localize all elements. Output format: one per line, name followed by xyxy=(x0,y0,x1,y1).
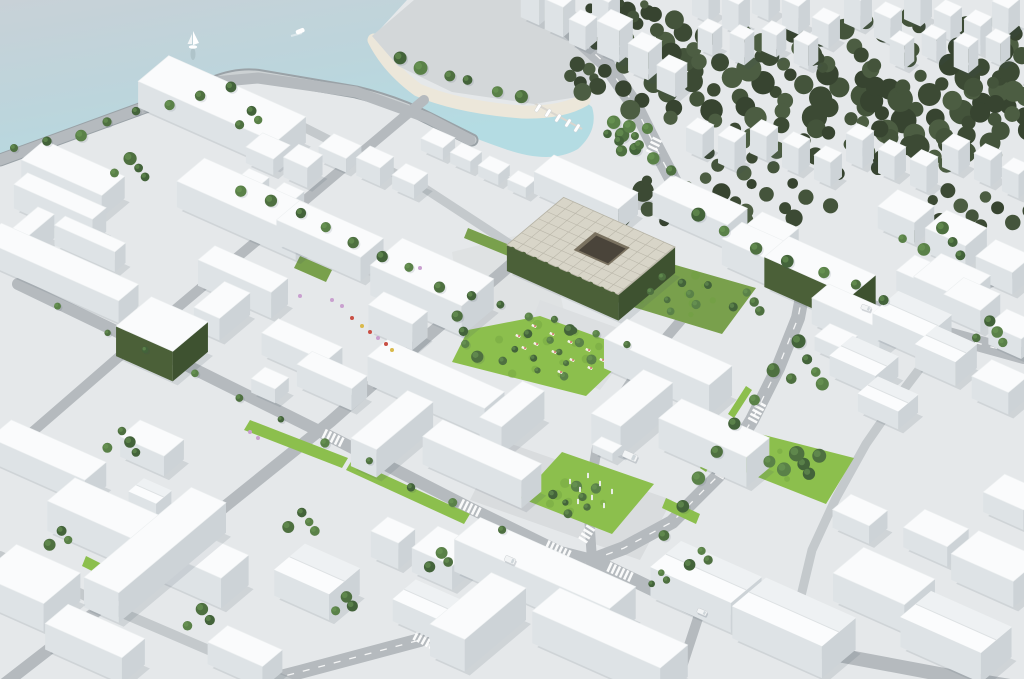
parasol-dot xyxy=(588,349,590,351)
forest-canopy xyxy=(589,78,606,95)
tree-highlight xyxy=(236,395,240,399)
lawn-texture xyxy=(710,297,716,303)
tree-highlight xyxy=(616,129,623,136)
tree-highlight xyxy=(664,577,668,581)
tree-highlight xyxy=(395,53,401,59)
tree-highlight xyxy=(648,288,652,292)
sailboat-reflection xyxy=(191,48,196,60)
tree-highlight xyxy=(659,570,662,573)
tree-highlight xyxy=(499,357,503,361)
forest-canopy xyxy=(598,64,612,78)
forest-canopy xyxy=(691,54,707,70)
tree-highlight xyxy=(405,264,410,269)
forest-canopy xyxy=(707,83,720,96)
ivy-fringe xyxy=(532,257,537,262)
tree-highlight xyxy=(472,352,478,358)
tree-highlight xyxy=(512,347,515,350)
forest-canopy xyxy=(573,83,591,101)
tree-highlight xyxy=(705,282,709,286)
tree-highlight xyxy=(236,121,241,126)
tree-highlight xyxy=(572,482,577,487)
tree-highlight xyxy=(790,448,798,456)
tree-highlight xyxy=(143,347,146,350)
lawn-texture xyxy=(508,370,516,378)
parasol-dot xyxy=(602,359,604,361)
tree-highlight xyxy=(499,527,503,531)
tree-highlight xyxy=(342,592,348,598)
tree-highlight xyxy=(819,268,825,274)
forest-canopy xyxy=(943,91,962,110)
ivy-fringe xyxy=(599,287,604,292)
lawn-texture xyxy=(600,500,606,506)
tree-highlight xyxy=(750,396,755,401)
forest-canopy xyxy=(747,179,757,189)
ivy-fringe xyxy=(521,252,526,257)
market-accent xyxy=(368,330,372,334)
tree-highlight xyxy=(197,604,203,610)
tree-highlight xyxy=(756,307,761,312)
tree-highlight xyxy=(366,458,370,462)
tree-highlight xyxy=(617,146,623,152)
forest-canopy xyxy=(980,191,991,202)
tree-highlight xyxy=(985,316,991,322)
parasol-dot xyxy=(552,333,554,335)
market-accent xyxy=(376,336,380,340)
forest-canopy xyxy=(650,23,664,37)
tree-highlight xyxy=(608,117,615,124)
tree-highlight xyxy=(125,153,132,160)
tree-highlight xyxy=(659,274,663,278)
tree-highlight xyxy=(973,334,977,338)
tree-highlight xyxy=(956,251,961,256)
tree-highlight xyxy=(565,325,571,331)
market-accent xyxy=(418,266,422,270)
tree-highlight xyxy=(111,169,115,173)
tree-highlight xyxy=(635,141,640,146)
tree-highlight xyxy=(43,137,48,142)
tree-highlight xyxy=(192,370,196,374)
market-accent xyxy=(330,298,334,302)
tree-highlight xyxy=(531,355,535,359)
tree-highlight xyxy=(437,548,443,554)
tree-highlight xyxy=(453,312,459,318)
tree-highlight xyxy=(378,252,384,258)
parasol-dot xyxy=(590,367,592,369)
parasol-dot xyxy=(536,343,538,345)
tree-highlight xyxy=(206,616,211,621)
tree-highlight xyxy=(592,484,597,489)
tree-highlight xyxy=(76,131,82,137)
forest-canopy xyxy=(822,126,835,139)
forest-canopy xyxy=(663,111,677,125)
forest-canopy xyxy=(620,100,640,120)
tree-highlight xyxy=(348,602,354,608)
tree-highlight xyxy=(584,504,588,508)
forest-canopy xyxy=(866,77,885,96)
tree-highlight xyxy=(648,153,654,159)
forest-canopy xyxy=(953,198,968,213)
tree-highlight xyxy=(196,92,201,97)
tree-highlight xyxy=(712,447,718,453)
tree-highlight xyxy=(103,444,108,449)
tree-highlight xyxy=(125,437,131,443)
market-accent xyxy=(340,304,344,308)
tree-highlight xyxy=(460,328,465,333)
market-accent xyxy=(384,342,388,346)
lawn-texture xyxy=(688,312,693,317)
sculpture xyxy=(577,499,579,504)
forest-canopy xyxy=(775,103,791,119)
tree-highlight xyxy=(812,368,817,373)
forest-canopy xyxy=(935,77,948,90)
tree-highlight xyxy=(425,562,431,568)
tree-highlight xyxy=(321,439,326,444)
tree-highlight xyxy=(576,339,581,344)
sculpture xyxy=(569,479,571,484)
aerial-rendering-canvas xyxy=(0,0,1024,679)
tree-highlight xyxy=(649,581,652,584)
tree-highlight xyxy=(184,622,189,627)
market-accent xyxy=(390,348,394,352)
tree-highlight xyxy=(692,301,697,306)
tree-highlight xyxy=(999,339,1004,344)
tree-highlight xyxy=(604,130,608,134)
forest-canopy xyxy=(700,172,711,183)
tree-highlight xyxy=(817,379,824,386)
ivy-fringe xyxy=(510,247,515,252)
parasol-dot xyxy=(518,335,520,337)
tree-highlight xyxy=(415,62,422,69)
tree-highlight xyxy=(58,527,63,532)
sailboat-hull xyxy=(189,45,197,48)
tree-highlight xyxy=(297,209,302,214)
tree-highlight xyxy=(879,296,884,301)
tree-highlight xyxy=(408,484,412,488)
tree-highlight xyxy=(765,457,771,463)
tree-highlight xyxy=(497,301,501,305)
tree-highlight xyxy=(949,238,954,243)
sculpture xyxy=(579,487,581,492)
tree-highlight xyxy=(464,76,469,81)
ivy-fringe xyxy=(566,272,571,277)
lawn-texture xyxy=(595,343,602,350)
tree-highlight xyxy=(322,223,327,228)
market-accent xyxy=(350,316,354,320)
tree-highlight xyxy=(516,91,523,98)
tree-highlight xyxy=(803,355,808,360)
forest-canopy xyxy=(570,57,585,72)
tree-highlight xyxy=(493,87,499,93)
forest-canopy xyxy=(615,80,632,97)
tree-highlight xyxy=(852,281,857,286)
tree-highlight xyxy=(445,72,450,77)
forest-canopy xyxy=(564,70,576,82)
forest-canopy xyxy=(854,48,869,63)
tree-highlight xyxy=(255,117,259,121)
forest-canopy xyxy=(1004,106,1020,122)
tree-highlight xyxy=(643,124,649,130)
lawn-texture xyxy=(691,271,700,280)
tree-highlight xyxy=(743,289,747,293)
tree-highlight xyxy=(349,238,355,244)
sculpture xyxy=(587,473,589,478)
tree-highlight xyxy=(298,509,303,514)
forest-canopy xyxy=(991,201,1004,214)
parasol-dot xyxy=(554,351,556,353)
tree-highlight xyxy=(704,556,709,561)
sculpture xyxy=(591,495,593,500)
tree-highlight xyxy=(444,558,449,563)
ivy-fringe xyxy=(543,262,548,267)
tree-highlight xyxy=(729,419,735,425)
tree-highlight xyxy=(698,548,702,552)
tree-highlight xyxy=(468,292,473,297)
ivy-fringe xyxy=(554,267,559,272)
lawn-texture xyxy=(777,449,782,454)
market-accent xyxy=(256,436,260,440)
forest-canopy xyxy=(1003,81,1024,102)
tree-highlight xyxy=(524,330,528,334)
forest-canopy xyxy=(759,187,774,202)
tree-highlight xyxy=(165,101,170,106)
forest-canopy xyxy=(823,198,838,213)
tree-highlight xyxy=(668,308,672,312)
tree-highlight xyxy=(778,464,785,471)
tree-highlight xyxy=(142,173,146,177)
lawn-texture xyxy=(495,336,503,344)
tree-highlight xyxy=(937,223,943,229)
forest-canopy xyxy=(867,58,881,72)
tree-highlight xyxy=(782,256,788,262)
forest-canopy xyxy=(970,102,990,122)
forest-canopy xyxy=(647,7,662,22)
tree-highlight xyxy=(678,501,684,507)
tree-highlight xyxy=(105,330,108,333)
tree-highlight xyxy=(564,361,567,364)
tree-highlight xyxy=(769,364,775,370)
market-accent xyxy=(248,430,252,434)
lawn-texture xyxy=(533,320,543,330)
tree-highlight xyxy=(587,355,592,360)
forest-canopy xyxy=(798,190,813,205)
forest-canopy xyxy=(794,75,813,94)
tree-highlight xyxy=(804,469,810,475)
market-accent xyxy=(360,324,364,328)
tree-highlight xyxy=(103,118,108,123)
parasol-dot xyxy=(560,371,562,373)
tree-highlight xyxy=(547,337,551,341)
parasol-dot xyxy=(572,359,574,361)
forest-canopy xyxy=(784,69,796,81)
tree-highlight xyxy=(615,137,620,142)
sculpture xyxy=(603,503,605,508)
tree-highlight xyxy=(236,187,242,193)
tree-highlight xyxy=(227,83,232,88)
forest-canopy xyxy=(940,183,955,198)
lawn-texture xyxy=(560,478,570,488)
tree-highlight xyxy=(665,297,668,300)
tree-highlight xyxy=(624,121,630,127)
tree-highlight xyxy=(45,540,51,546)
forest-canopy xyxy=(964,78,983,97)
forest-canopy xyxy=(844,112,857,125)
market-accent xyxy=(298,294,302,298)
tree-highlight xyxy=(435,283,441,289)
tree-highlight xyxy=(132,449,136,453)
forest-canopy xyxy=(787,178,798,189)
forest-canopy xyxy=(987,77,999,89)
tree-highlight xyxy=(899,235,903,239)
tree-highlight xyxy=(720,227,725,232)
tree-highlight xyxy=(730,303,735,308)
tree-highlight xyxy=(693,209,700,216)
tree-highlight xyxy=(449,499,453,503)
tree-highlight xyxy=(525,313,529,317)
tree-highlight xyxy=(814,450,821,457)
sculpture xyxy=(611,489,613,494)
tree-highlight xyxy=(306,519,310,523)
tree-highlight xyxy=(919,244,925,250)
parasol-dot xyxy=(524,347,526,349)
tree-highlight xyxy=(311,527,316,532)
tree-highlight xyxy=(993,327,999,333)
ivy-fringe xyxy=(610,292,615,297)
tree-highlight xyxy=(693,473,700,480)
tree-highlight xyxy=(55,303,58,306)
forest-canopy xyxy=(1005,215,1020,230)
tree-highlight xyxy=(549,491,554,496)
tree-highlight xyxy=(579,494,583,498)
parasol-dot xyxy=(534,325,536,327)
tree-highlight xyxy=(793,336,800,343)
tree-highlight xyxy=(750,298,755,303)
tree-highlight xyxy=(11,145,15,149)
ivy-fringe xyxy=(588,282,593,287)
sculpture xyxy=(599,481,601,486)
tree-highlight xyxy=(751,244,757,250)
parasol-dot xyxy=(570,341,572,343)
ivy-fringe xyxy=(577,277,582,282)
tree-highlight xyxy=(564,510,568,514)
tree-highlight xyxy=(685,560,691,566)
tree-highlight xyxy=(248,107,253,112)
tree-highlight xyxy=(563,500,566,503)
tree-highlight xyxy=(332,607,337,612)
forest-canopy xyxy=(665,10,684,29)
tree-highlight xyxy=(667,166,672,171)
tree-highlight xyxy=(135,164,139,168)
tree-highlight xyxy=(632,133,636,137)
tree-highlight xyxy=(660,531,665,536)
tree-highlight xyxy=(283,522,289,528)
forest-canopy xyxy=(914,70,926,82)
tree-highlight xyxy=(535,368,538,371)
tree-highlight xyxy=(787,374,792,379)
lawn-texture xyxy=(546,500,554,508)
tree-highlight xyxy=(593,331,597,335)
tree-highlight xyxy=(624,342,628,346)
tree-highlight xyxy=(133,108,137,112)
tree-highlight xyxy=(266,196,272,202)
tree-highlight xyxy=(462,341,466,345)
forest-canopy xyxy=(895,79,910,94)
tree-highlight xyxy=(65,537,69,541)
masterplan-rendering: Aerial axonometric rendering of an urban… xyxy=(0,0,1024,679)
tree-highlight xyxy=(679,279,683,283)
tree-highlight xyxy=(278,417,281,420)
tree-highlight xyxy=(552,317,556,321)
forest-canopy xyxy=(640,0,648,8)
tree-highlight xyxy=(687,291,691,295)
tree-highlight xyxy=(557,349,560,352)
tree-highlight xyxy=(119,428,123,432)
forest-canopy xyxy=(642,176,652,186)
lawn-texture xyxy=(784,476,790,482)
